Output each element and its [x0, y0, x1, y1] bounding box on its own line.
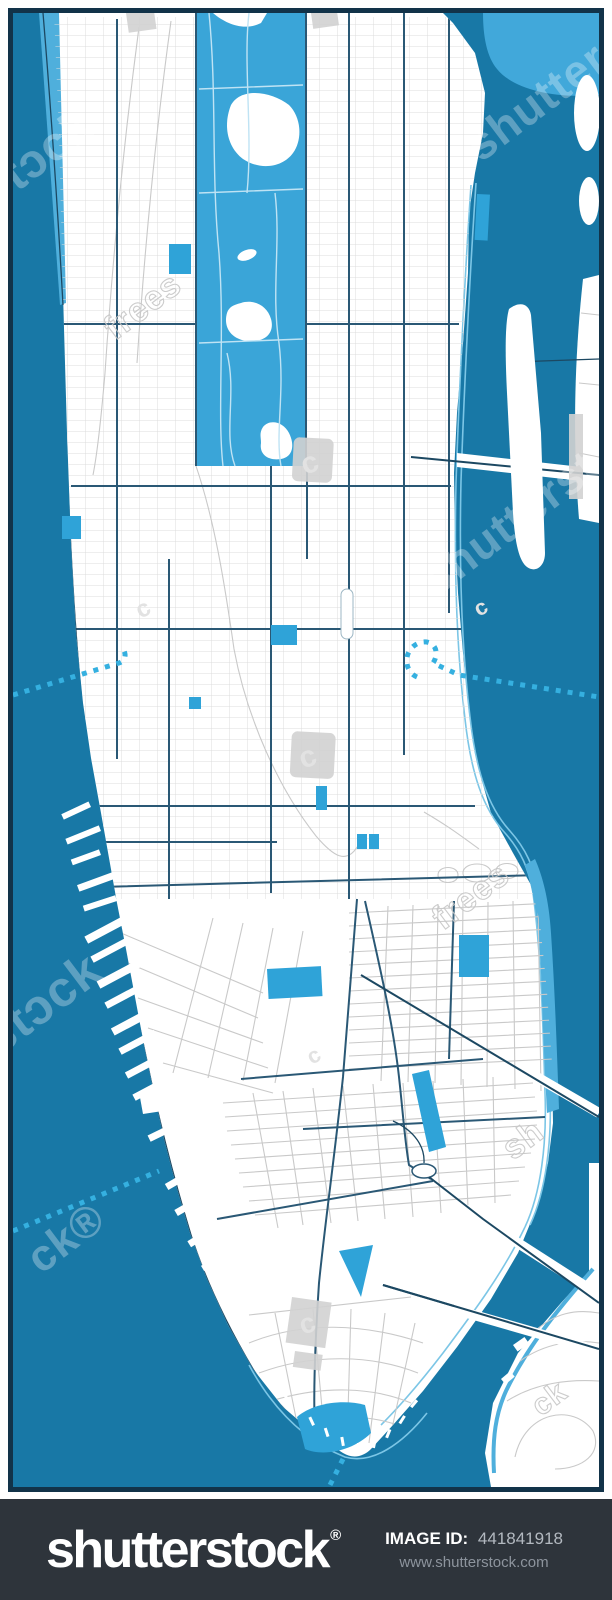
map-frame: c c c c c c: [8, 8, 604, 1492]
shutterstock-logo: shutterstock ®: [46, 1524, 341, 1576]
central-park: [196, 13, 306, 466]
image-meta: IMAGE ID: 441841918 www.shutterstock.com: [385, 1529, 563, 1571]
avenue-median: [341, 589, 353, 639]
image-id-label: IMAGE ID:: [385, 1529, 468, 1548]
logo-wordmark: shutterstock: [46, 1524, 328, 1576]
registered-mark: ®: [330, 1528, 341, 1543]
delancey-loop: [412, 1164, 436, 1178]
image-id-value: 441841918: [478, 1529, 563, 1548]
website-url: www.shutterstock.com: [399, 1554, 548, 1571]
stock-image-page: c c c c c c: [0, 0, 612, 1600]
manhattan-map-svg: c c c c c c: [13, 13, 599, 1487]
footer-bar: shutterstock ® IMAGE ID: 441841918 www.s…: [0, 1499, 612, 1600]
image-id-line: IMAGE ID: 441841918: [385, 1529, 563, 1549]
